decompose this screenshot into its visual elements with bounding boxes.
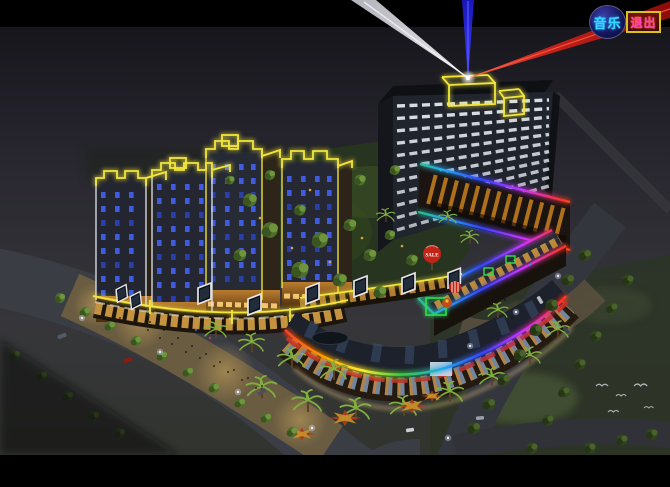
letterbox-top	[0, 0, 670, 27]
svg-text:SALE: SALE	[425, 254, 439, 259]
night-rendering-canvas: SALE	[0, 0, 670, 487]
exit-button[interactable]: 退出	[626, 11, 661, 33]
presentation-stage: SALE	[0, 0, 670, 487]
roof-logo-disc	[312, 332, 348, 345]
exit-button-label: 退出	[630, 14, 656, 31]
music-button-label: 音乐	[593, 13, 621, 32]
music-button[interactable]: 音乐	[589, 5, 626, 39]
letterbox-bottom	[0, 455, 670, 487]
